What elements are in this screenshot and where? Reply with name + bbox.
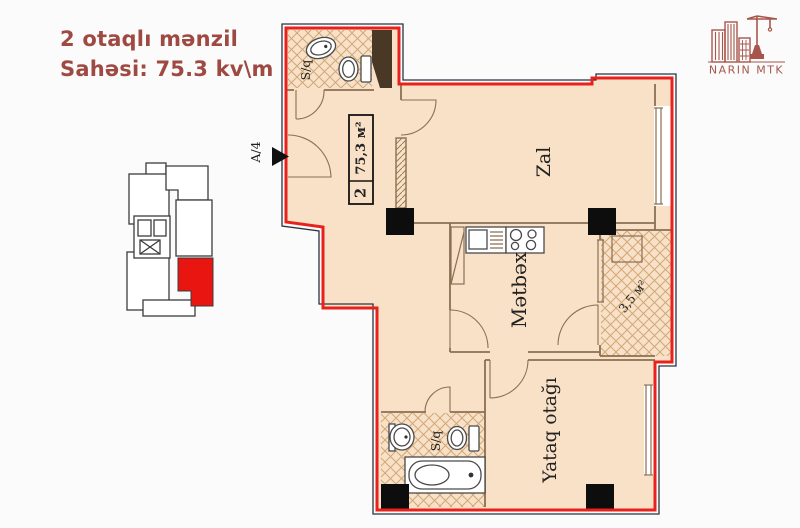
key-plan-unit <box>143 300 195 316</box>
key-plan-highlighted-unit <box>178 258 213 306</box>
buildings-crane-icon <box>708 16 785 62</box>
apartment-tag-area: 75,3 м² <box>354 121 369 174</box>
kitchen-sink-icon <box>466 227 506 253</box>
floor-plan-page: 2 otaqlı mənzil Sahəsi: 75.3 kv\m <box>0 0 800 528</box>
section-marker: A/4 <box>248 141 289 166</box>
key-plan-core <box>134 216 170 258</box>
column <box>588 208 616 235</box>
room-label-bedroom: Yataq otağı <box>540 377 561 483</box>
logo-text: NARIN MTK <box>709 64 784 77</box>
column <box>381 484 409 510</box>
room-label-bathroom-bottom: S/q <box>428 431 443 452</box>
hatched-wall <box>396 138 406 208</box>
room-label-kitchen: Mətbəx <box>507 251 531 328</box>
window-bedroom <box>644 384 654 476</box>
apartment-tag: 75,3 м² 2 <box>349 115 373 204</box>
key-plan-unit <box>176 200 212 256</box>
toilet-icon <box>339 56 371 82</box>
key-plan <box>127 163 213 316</box>
company-logo: NARIN MTK <box>708 16 785 77</box>
column <box>586 484 614 510</box>
page-title: 2 otaqlı mənzil Sahəsi: 75.3 kv\m <box>60 24 274 85</box>
stove-icon <box>506 227 544 253</box>
room-label-living: Zal <box>533 147 555 178</box>
bathtub-icon <box>405 457 485 493</box>
sink-icon <box>389 424 414 451</box>
floor-plan: 75,3 м² 2 A/4 Zal Mətbəx Yataq otağı S/q… <box>248 24 676 514</box>
title-line-2: Sahəsi: 75.3 kv\m <box>60 54 274 84</box>
toilet-icon <box>448 426 480 451</box>
room-label-bathroom-top: S/q <box>298 60 313 81</box>
section-label: A/4 <box>248 141 263 163</box>
key-plan-unit <box>166 166 208 200</box>
apartment-tag-number: 2 <box>353 188 370 198</box>
title-line-1: 2 otaqlı mənzil <box>60 24 274 54</box>
column <box>386 208 414 235</box>
window-living <box>654 106 671 206</box>
